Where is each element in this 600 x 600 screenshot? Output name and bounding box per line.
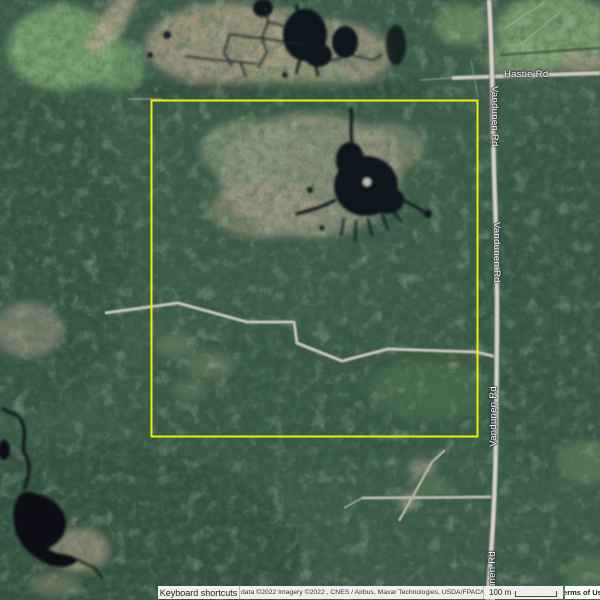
scale-bar	[515, 591, 557, 597]
canopy-texture	[0, 0, 600, 600]
satellite-imagery[interactable]	[0, 0, 600, 600]
keyboard-shortcuts-button[interactable]: Keyboard shortcuts	[158, 586, 239, 599]
map-viewport[interactable]: Hastie Rd Vandunen Rd Vandunen Rd Vandun…	[0, 0, 600, 600]
terms-of-use-link[interactable]: Terms of Use	[565, 586, 600, 599]
map-attribution: Map data ©2022 Imagery ©2022 , CNES / Ai…	[239, 586, 483, 599]
scale-label: 100 m	[489, 588, 511, 597]
scale-control[interactable]: 100 m	[483, 586, 563, 599]
map-footer: Keyboard shortcuts Map data ©2022 Imager…	[158, 586, 600, 599]
